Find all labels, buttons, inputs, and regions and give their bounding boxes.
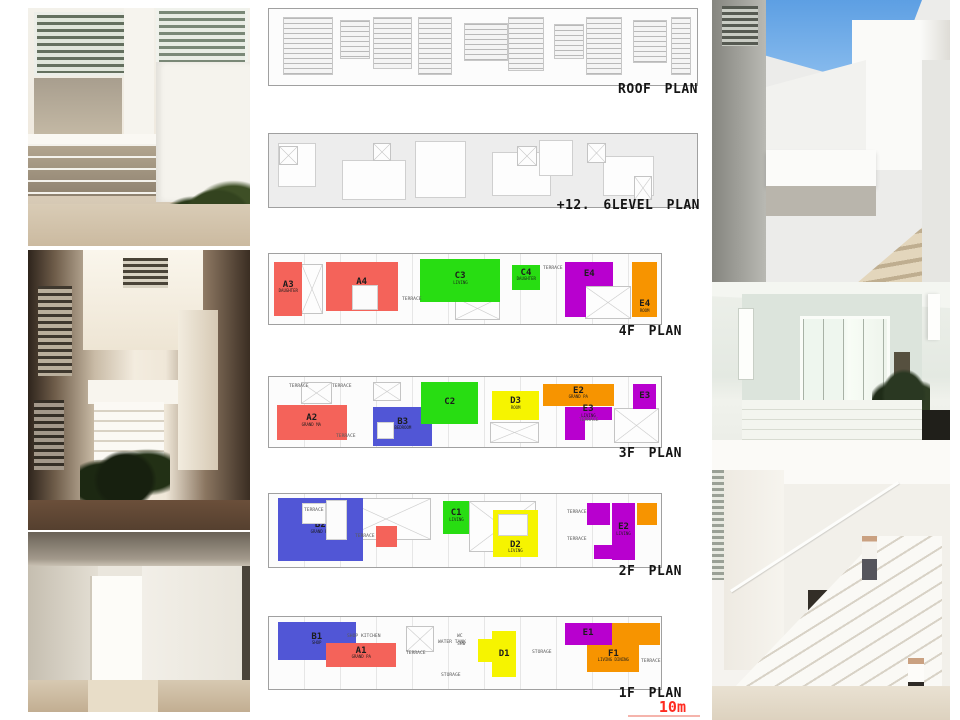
void-x-marker	[373, 143, 390, 161]
louver-window-icon	[712, 470, 724, 580]
roof-louver-hatch	[373, 17, 413, 69]
void-x-marker	[373, 382, 400, 402]
right-wall	[142, 566, 250, 680]
void-x-marker	[587, 143, 606, 163]
doorway-bright	[90, 576, 146, 680]
roof-louver-hatch	[418, 17, 452, 76]
photo-interior-atrium	[28, 8, 250, 246]
room-label: E2LIVING	[609, 523, 638, 540]
bridge-slab	[766, 150, 876, 186]
plan-annotation: SHOP KITCHEN	[347, 633, 381, 638]
void-x-marker	[406, 626, 433, 652]
room-label: B1SHOP	[307, 633, 326, 650]
room-label: A1GRAND PA	[342, 647, 381, 664]
3f-plan-label: 3F PLAN	[520, 446, 682, 461]
room-e2	[587, 503, 609, 525]
plan-annotation: WATER TANK	[438, 639, 466, 644]
void-x-marker	[614, 408, 659, 443]
room-cutout	[352, 285, 378, 310]
room-cutout	[377, 422, 395, 439]
roof-louver-hatch	[508, 17, 544, 72]
roof-louver-hatch	[554, 24, 584, 59]
plan-annotation: TERRACE	[579, 417, 599, 422]
room-f1: F1LIVING DINING	[587, 645, 639, 672]
room-d1	[478, 639, 493, 662]
room-label: C2	[444, 398, 455, 407]
tile-floor	[742, 400, 922, 440]
stair-landing	[88, 380, 178, 404]
plan-annotation: TERRACE	[289, 383, 309, 388]
floor-light-patch	[88, 680, 158, 712]
dark-edge	[242, 566, 250, 680]
room-c1: C1LIVING	[443, 501, 469, 534]
roof-louver-hatch	[464, 23, 508, 62]
room-c4: C4DAUGHTER	[512, 265, 541, 290]
roof-louver-hatch	[671, 17, 691, 76]
room-e2	[594, 545, 612, 559]
photo-room-glass-doors	[712, 282, 950, 440]
person-figure	[862, 536, 877, 580]
room-label: D1	[499, 650, 510, 659]
roof-louver-hatch	[586, 17, 622, 76]
floor	[28, 204, 250, 246]
room-c2: C2	[421, 382, 478, 424]
room-label: A2GRAND MA	[292, 414, 331, 431]
scale-label: 10m	[600, 698, 686, 716]
room-f1	[612, 623, 660, 645]
void-x-marker	[634, 176, 652, 200]
plan-annotation: TERRACE	[406, 650, 426, 655]
white-column	[124, 8, 154, 138]
right-wall	[922, 60, 950, 282]
railing	[28, 144, 156, 196]
room-block	[376, 526, 397, 546]
left-wall	[28, 566, 98, 682]
window-slit	[738, 308, 754, 380]
room-cutout	[326, 500, 348, 540]
floor-plan-4f: A3DAUGHTERA4BEDROOMC3LIVINGC4DAUGHTERE4E…	[268, 253, 662, 325]
room-label: F1LIVING DINING	[582, 650, 645, 667]
void-x-marker	[585, 286, 631, 319]
room-block	[637, 503, 657, 524]
louver-window-icon	[123, 258, 168, 288]
room-label: C1LIVING	[442, 509, 471, 526]
photo-lightwell-sky	[712, 0, 950, 282]
room-cutout	[498, 514, 527, 536]
room-a3: A3DAUGHTER	[274, 262, 302, 315]
void-x-marker	[279, 146, 298, 166]
room-d3: D3ROOM	[492, 391, 539, 420]
plan-annotation: TERRACE	[304, 507, 324, 512]
room-d1: D1	[492, 631, 516, 677]
plan-annotation: TERRACE	[567, 536, 587, 541]
room-label: C3LIVING	[446, 272, 475, 289]
plan-annotation: TERRACE	[567, 509, 587, 514]
void-x-marker	[490, 422, 540, 443]
plan-annotation: TERRACE	[332, 383, 352, 388]
louver-window-icon	[34, 400, 64, 470]
louver-window-icon	[34, 12, 128, 76]
plan-annotation: TERRACE	[402, 296, 422, 301]
room-label: A3DAUGHTER	[269, 281, 308, 298]
room-e4	[565, 286, 585, 317]
4f-plan-label: 4F PLAN	[520, 324, 682, 339]
roof-louver-hatch	[283, 17, 333, 76]
plan-annotation: STORAGE	[532, 649, 552, 654]
room-e1: E1	[565, 623, 612, 645]
plan-annotation: TERRACE	[355, 533, 375, 538]
roof-louver-hatch	[340, 20, 370, 59]
presentation-sheet: ROOF PLAN +12. 6LEVEL PLAN A3DAUGHTERA4B…	[0, 0, 960, 720]
room-e4: E4ROOM	[632, 262, 657, 317]
floor-plan-2f: B2GRAND PAC1LIVINGD2LIVINGE2LIVINGTERRAC…	[268, 493, 662, 568]
white-pillar	[178, 310, 218, 470]
room-label: E3	[639, 392, 650, 401]
ceiling	[28, 532, 250, 566]
plan-annotation: STORAGE	[441, 672, 461, 677]
room-label: D3ROOM	[506, 397, 525, 414]
void-x-marker	[517, 146, 537, 166]
floor	[28, 500, 250, 530]
roof-louver-hatch	[633, 20, 667, 63]
room-a1: A1GRAND PA	[326, 643, 397, 667]
plan-room-outline	[342, 160, 406, 200]
window-slit	[928, 294, 940, 340]
plan-room-outline	[539, 140, 573, 177]
floor	[712, 686, 950, 720]
level-126-plan-drawing	[268, 133, 698, 208]
roof-plan-label: ROOF PLAN	[498, 82, 698, 97]
room-label: E1	[583, 629, 594, 638]
room-c3: C3LIVING	[420, 259, 500, 302]
opening-shadow	[766, 186, 876, 216]
2f-plan-label: 2F PLAN	[520, 564, 682, 579]
plan-annotation: WC	[457, 633, 463, 638]
photo-stair-hall	[712, 440, 950, 720]
louver-window-icon	[38, 286, 72, 376]
room-e2: E2LIVING	[612, 503, 634, 559]
roof-plan-drawing	[268, 8, 698, 86]
room-label: E4	[584, 270, 595, 279]
plan-annotation: TERRACE	[336, 433, 356, 438]
photo-corridor	[28, 532, 250, 712]
scale-bar	[628, 715, 700, 717]
room-e2: E2GRAND PA	[543, 384, 615, 406]
room-e3: E3	[633, 384, 656, 409]
floor-plan-1f: B1SHOPA1GRAND PAD1E1F1LIVING DININGSHOP …	[268, 616, 662, 690]
left-wall	[724, 470, 784, 670]
room-label: C4DAUGHTER	[507, 269, 546, 286]
plan-room-outline	[415, 141, 466, 198]
photo-stairwell-shaft	[28, 250, 250, 530]
floor-plan-3f: A2GRAND MAB3BEDROOMC2D3ROOME2GRAND PAE3E…	[268, 376, 662, 448]
room-label: D2LIVING	[501, 541, 530, 558]
louver-window-icon	[722, 6, 758, 46]
room-label: E2GRAND PA	[559, 387, 598, 404]
wall-opening	[34, 78, 122, 134]
room-label: E4ROOM	[635, 300, 654, 317]
void-x-marker	[301, 264, 324, 314]
plan-annotation: TERRACE	[641, 658, 661, 663]
level-126-plan-label: +12. 6LEVEL PLAN	[478, 198, 700, 213]
plan-annotation: TERRACE	[543, 265, 563, 270]
louver-window-icon	[156, 8, 248, 68]
room-e4: E4	[565, 262, 613, 286]
